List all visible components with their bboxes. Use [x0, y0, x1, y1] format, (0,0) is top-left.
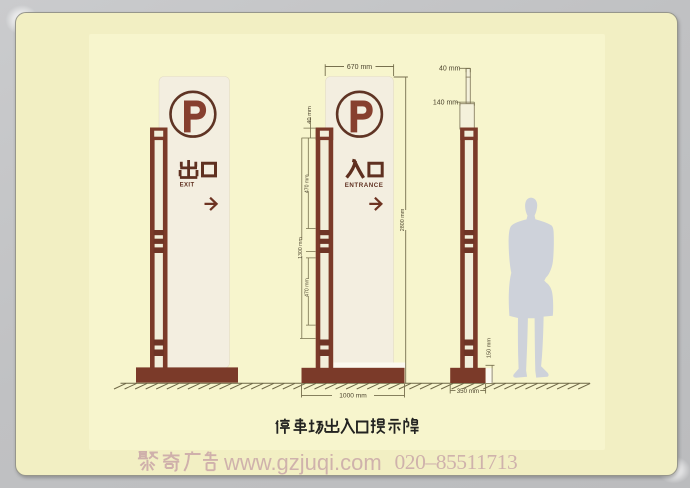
svg-text:470 mm: 470 mm: [305, 174, 311, 193]
svg-text:40 mm: 40 mm: [439, 66, 461, 73]
svg-text:150 mm: 150 mm: [486, 338, 492, 359]
svg-text:670 mm: 670 mm: [347, 64, 372, 71]
svg-text:1000 mm: 1000 mm: [339, 393, 367, 400]
svg-text:020–85511713: 020–85511713: [395, 450, 518, 474]
svg-text:EXIT: EXIT: [180, 182, 195, 188]
svg-text:40 mm: 40 mm: [307, 106, 313, 124]
svg-text:ENTRANCE: ENTRANCE: [345, 182, 384, 189]
svg-text:470 mm: 470 mm: [305, 278, 311, 297]
svg-text:350 mm: 350 mm: [457, 388, 479, 395]
svg-text:140 mm: 140 mm: [433, 99, 458, 106]
svg-text:2800 mm: 2800 mm: [400, 208, 406, 231]
svg-text:www.gzjuqi.com: www.gzjuqi.com: [223, 450, 382, 475]
svg-text:1300 mm: 1300 mm: [298, 237, 304, 259]
